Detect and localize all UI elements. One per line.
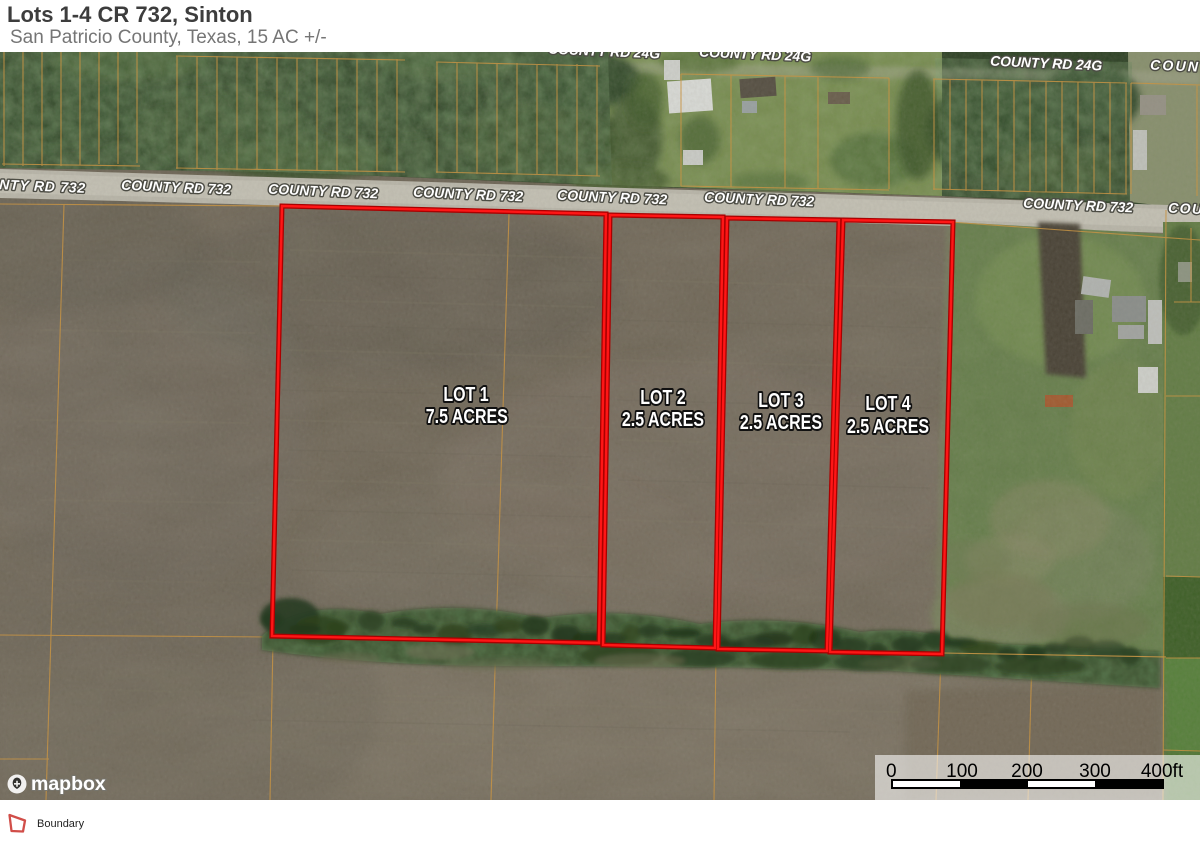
svg-text:mapbox: mapbox	[31, 773, 106, 795]
svg-text:COUNTY: COUNTY	[1168, 200, 1200, 219]
svg-text:COUNTY: COUNTY	[1150, 56, 1200, 75]
svg-text:300: 300	[1079, 761, 1111, 782]
svg-text:200: 200	[1011, 761, 1043, 782]
svg-text:2.5 ACRES: 2.5 ACRES	[847, 415, 929, 437]
svg-text:2.5 ACRES: 2.5 ACRES	[622, 408, 704, 430]
svg-text:7.5 ACRES: 7.5 ACRES	[426, 405, 508, 427]
svg-text:LOT 2: LOT 2	[640, 386, 685, 408]
svg-text:2.5 ACRES: 2.5 ACRES	[740, 411, 822, 433]
svg-text:100: 100	[946, 761, 978, 782]
svg-text:LOT 3: LOT 3	[758, 389, 803, 411]
svg-text:400ft: 400ft	[1141, 761, 1184, 782]
svg-text:LOT 4: LOT 4	[865, 392, 910, 414]
svg-text:LOT 1: LOT 1	[443, 383, 488, 405]
svg-text:0: 0	[886, 761, 897, 782]
